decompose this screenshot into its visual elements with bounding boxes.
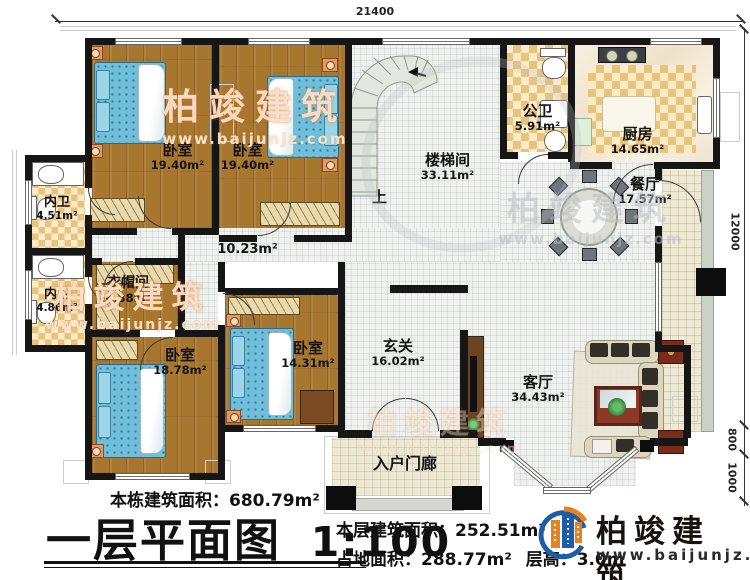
blanket xyxy=(138,64,165,142)
nightstand xyxy=(322,158,338,172)
wall xyxy=(178,232,185,337)
wall xyxy=(218,262,225,292)
sofa-cushion xyxy=(632,343,650,357)
room-label-bedroom-bm: 卧室 14.31m² xyxy=(268,340,348,370)
chair xyxy=(625,209,638,224)
window xyxy=(650,38,702,45)
wall xyxy=(390,285,468,293)
wall xyxy=(218,425,243,432)
wall xyxy=(345,45,352,235)
dresser xyxy=(300,390,334,424)
wall xyxy=(25,345,89,352)
sofa-cushion-light xyxy=(592,439,612,454)
dimension-tick xyxy=(51,14,61,24)
terrace-column xyxy=(696,268,726,296)
dimension-right-mid: 800 xyxy=(726,420,739,460)
nightstand xyxy=(322,58,338,72)
wall xyxy=(713,138,720,169)
chair xyxy=(582,248,597,261)
pillow xyxy=(324,84,338,114)
wall xyxy=(92,330,140,337)
room-label-inner-bath-2: 内卫 4.86m² xyxy=(28,288,86,314)
stove-burner xyxy=(626,50,638,62)
tv xyxy=(470,356,477,412)
wall xyxy=(25,248,89,255)
room-label-cloakroom: 衣帽间 6.38m² xyxy=(88,276,168,305)
roof-frame-5 xyxy=(720,92,740,142)
brand-logo-icon xyxy=(534,504,590,566)
pillow xyxy=(96,70,110,100)
pillow xyxy=(232,368,245,398)
pillow xyxy=(98,406,111,438)
window xyxy=(713,78,720,138)
pillow xyxy=(98,372,111,404)
dimension-right-upper: 12000 xyxy=(729,202,742,262)
wall xyxy=(85,38,92,163)
wall xyxy=(25,162,32,180)
dimension-right-lower: 1000 xyxy=(726,456,739,500)
wall xyxy=(85,215,92,277)
wall xyxy=(85,473,115,480)
nightstand xyxy=(226,410,241,423)
room-label-kitchen: 厨房 14.65m² xyxy=(600,126,675,156)
wall xyxy=(650,438,688,446)
window xyxy=(655,262,662,332)
dimension-line-top xyxy=(55,21,743,22)
title-underline xyxy=(44,561,366,564)
pillow xyxy=(324,116,338,146)
dining-table-center xyxy=(572,200,606,234)
bay-corner xyxy=(640,440,654,452)
wall xyxy=(212,45,219,228)
window xyxy=(115,38,182,45)
wall xyxy=(655,226,662,262)
wash-basin xyxy=(38,165,64,184)
plant xyxy=(608,398,626,416)
wall xyxy=(175,330,218,337)
roof-eave-left xyxy=(12,150,17,355)
porch-column xyxy=(452,486,482,510)
brand-logo: 柏竣建筑 www.baijunjz.com xyxy=(534,504,744,574)
wall xyxy=(654,162,714,169)
brand-name: 柏竣建筑 xyxy=(596,506,744,580)
pillow xyxy=(232,336,245,366)
floor-building-area: 本层建筑面积：252.51m² xyxy=(336,516,546,541)
wall xyxy=(684,345,691,438)
wall xyxy=(470,38,650,45)
bay-window xyxy=(543,487,591,494)
pillow xyxy=(96,102,110,132)
wall xyxy=(85,155,92,188)
room-label-living: 客厅 34.43m² xyxy=(498,374,578,404)
wall xyxy=(713,38,720,78)
wardrobe xyxy=(96,340,138,360)
window xyxy=(382,38,470,45)
dimension-line-right xyxy=(744,28,745,506)
roof-eave-top xyxy=(60,26,736,31)
wash-basin xyxy=(38,258,64,277)
wall xyxy=(460,330,468,438)
kitchen-sink xyxy=(697,96,712,134)
room-label-bedroom-tr: 卧室 19.40m² xyxy=(205,142,290,172)
window xyxy=(243,425,316,432)
room-label-inner-bath-1: 内卫 4.51m² xyxy=(28,196,86,222)
wall xyxy=(85,228,137,235)
hallway-area-label: 10.23m² xyxy=(205,243,290,258)
sofa-cushion xyxy=(642,412,658,429)
window xyxy=(248,38,310,45)
chair xyxy=(582,170,597,183)
toilet-tank xyxy=(540,48,566,57)
wall xyxy=(219,235,257,242)
wall xyxy=(440,430,478,438)
room-label-porch: 入户门廊 xyxy=(352,455,458,473)
wall xyxy=(85,304,92,480)
wall xyxy=(294,235,352,242)
terrace-edge-strip xyxy=(701,170,714,432)
wall xyxy=(25,155,89,162)
dimension-tick xyxy=(736,14,746,24)
room-label-bedroom-bl: 卧室 18.78m² xyxy=(140,347,220,377)
room-label-dining: 餐厅 17.57m² xyxy=(606,176,684,206)
window xyxy=(115,473,190,480)
wall xyxy=(225,288,338,295)
wall xyxy=(338,430,372,438)
title-underline-2 xyxy=(44,567,366,568)
wall xyxy=(182,38,248,45)
blanket xyxy=(140,368,164,454)
wall xyxy=(310,38,382,45)
wall xyxy=(92,258,102,265)
room-label-foyer: 玄关 16.02m² xyxy=(358,338,438,368)
sofa-cushion xyxy=(642,390,658,407)
floor-plan-canvas: 上 xyxy=(0,0,750,580)
sofa-cushion xyxy=(611,343,629,357)
sofa-cushion xyxy=(590,343,608,357)
brand-url: www.baijunjz.com xyxy=(596,546,750,564)
wall xyxy=(135,258,178,265)
sofa-cushion xyxy=(642,368,658,385)
stove-burner xyxy=(606,50,618,62)
dimension-top-width: 21400 xyxy=(330,5,420,18)
